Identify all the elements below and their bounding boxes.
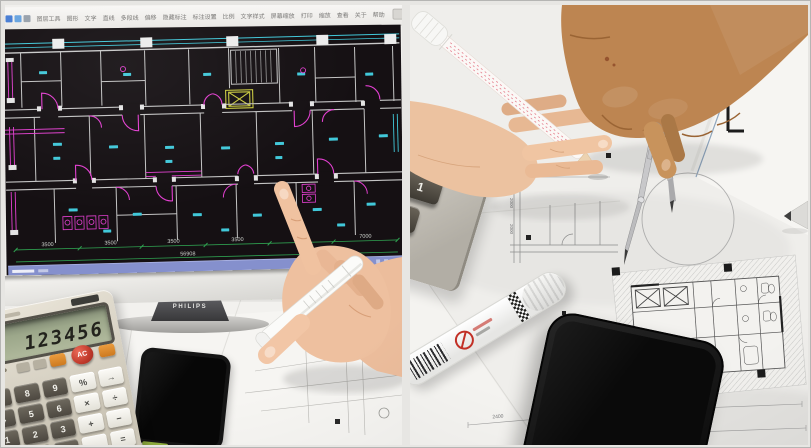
photo-divider	[402, 1, 410, 448]
right-photo: 9000 30700 2400 2000 2000 014	[410, 5, 808, 445]
compass-needle-tip	[624, 249, 628, 265]
fist-with-compass	[561, 5, 808, 265]
left-photo: PHILIPS 图层工具图形文字直线多段线偏移隐藏标注标注设置比例文字样式屏幕缩…	[5, 5, 402, 445]
pointing-hand	[5, 5, 402, 445]
drafting-hands	[410, 5, 808, 445]
compass-lead-tip	[670, 200, 674, 213]
photo-collage: PHILIPS 图层工具图形文字直线多段线偏移隐藏标注标注设置比例文字样式屏幕缩…	[0, 0, 811, 448]
hand-and-pen	[253, 187, 402, 377]
knuckle-scab	[605, 57, 609, 61]
hand-shadow	[490, 194, 630, 220]
